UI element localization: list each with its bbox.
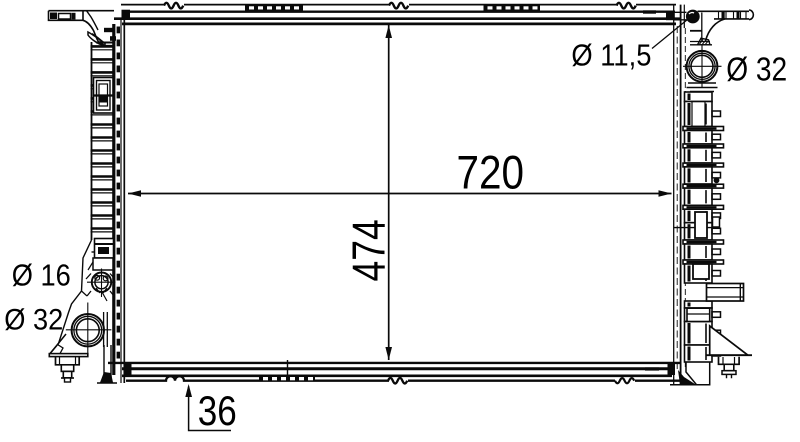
svg-text:36: 36 — [198, 387, 237, 434]
svg-text:Ø 16: Ø 16 — [12, 257, 71, 292]
svg-text:720: 720 — [457, 146, 525, 199]
svg-text:474: 474 — [342, 219, 394, 281]
svg-text:Ø 32: Ø 32 — [726, 51, 787, 88]
svg-text:Ø 32: Ø 32 — [4, 304, 63, 337]
svg-text:Ø 11,5: Ø 11,5 — [571, 39, 651, 73]
